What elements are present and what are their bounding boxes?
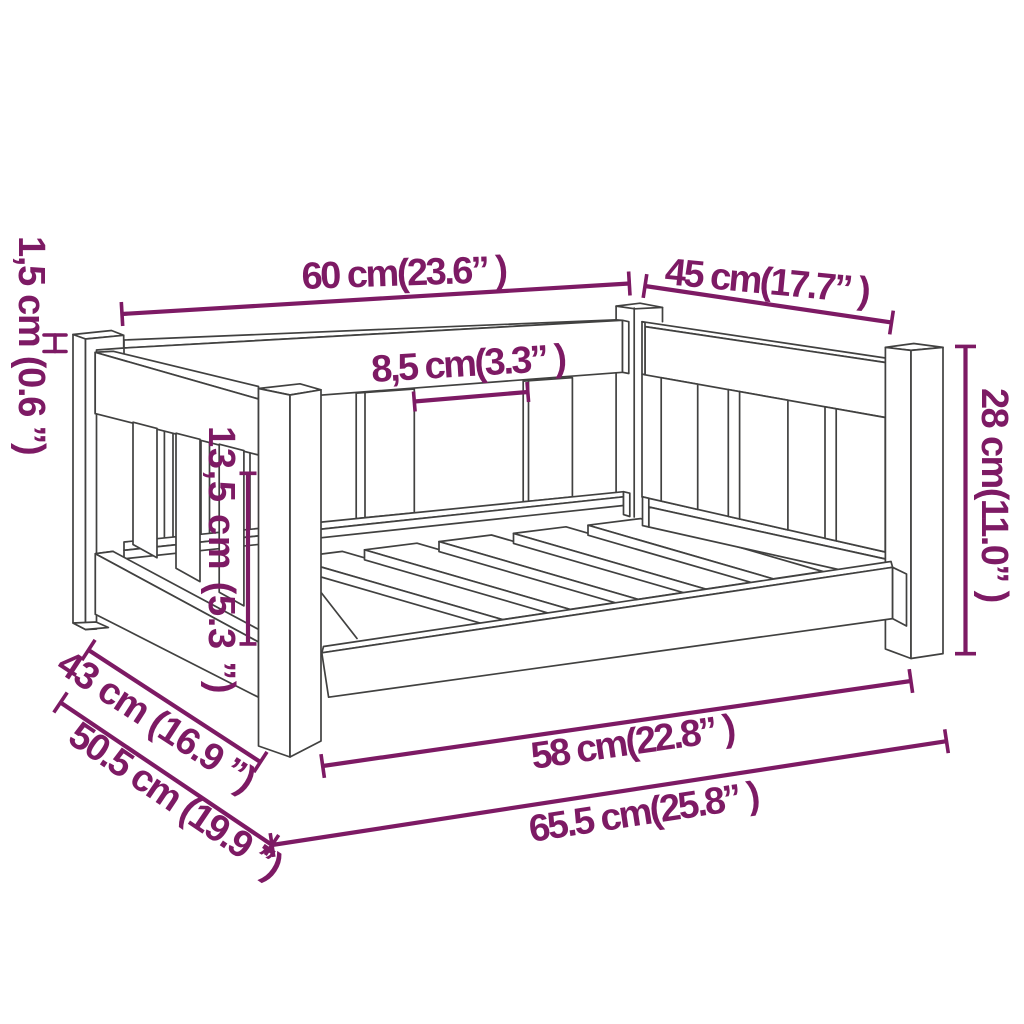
svg-text:1,5 cm (0.6 ”): 1,5 cm (0.6 ”) [10, 236, 52, 454]
svg-text:13,5 cm (5.3 ”): 13,5 cm (5.3 ”) [200, 426, 242, 694]
svg-text:58 cm(22.8” ): 58 cm(22.8” ) [528, 707, 737, 778]
svg-text:28 cm(11.0” ): 28 cm(11.0” ) [973, 388, 1015, 602]
svg-text:60 cm(23.6” ): 60 cm(23.6” ) [301, 249, 507, 298]
